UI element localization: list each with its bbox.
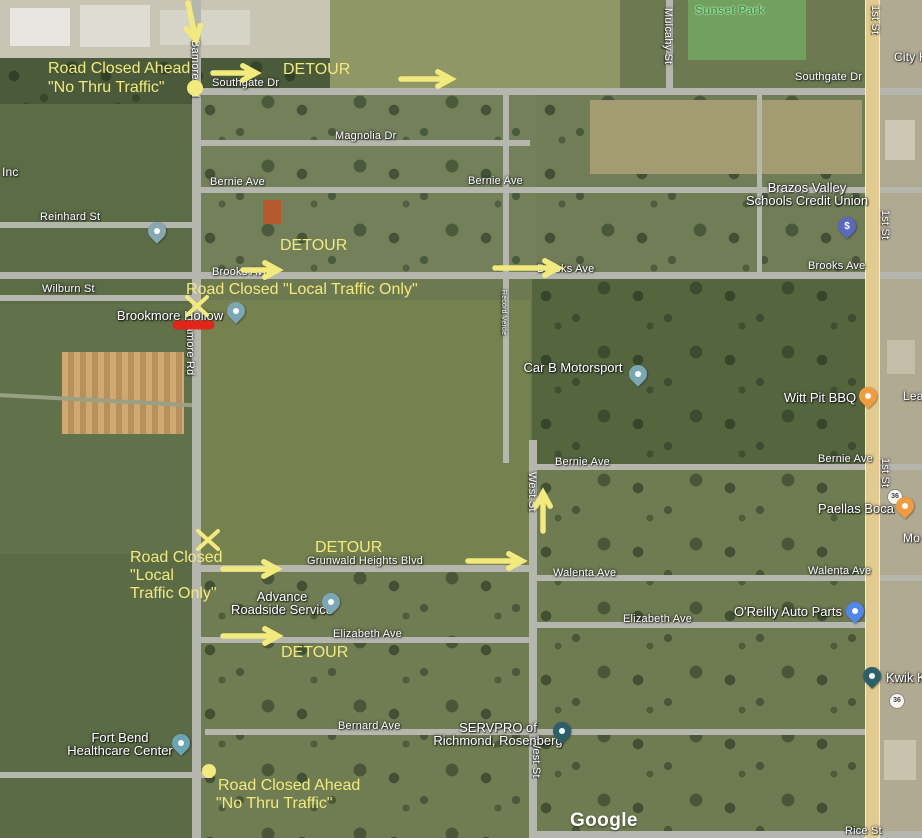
brazos-valley-schools-credit-union-dollar-icon: $ (838, 217, 856, 235)
annotation-detour: DETOUR (315, 539, 382, 557)
advance-roadside-service-pin[interactable] (318, 589, 343, 614)
street-label-1st-st: 1st St (879, 458, 891, 487)
highway-1st-st (865, 0, 880, 838)
school-dot-icon (148, 222, 166, 240)
witt-pit-bbq-pin[interactable] (855, 383, 880, 408)
fort-bend-healthcare-center-dot-icon (172, 734, 190, 752)
annotation-detour: DETOUR (283, 61, 350, 79)
street-label-magnolia-dr: Magnolia Dr (335, 130, 397, 142)
terrain-roof (80, 5, 150, 47)
street-label-walenta-ave: Walenta Ave (808, 565, 871, 577)
terrain-roof (160, 10, 250, 45)
annotation-traffic-only: Traffic Only" (130, 585, 217, 603)
terrain-suburb (532, 470, 866, 838)
street-label-elizabeth-ave: Elizabeth Ave (333, 628, 402, 640)
street-label-1st-st: 1st St (879, 210, 891, 239)
street-label-southgate-dr: Southgate Dr (795, 71, 862, 83)
street-label-bamore-rd: Bamore Rd (184, 318, 196, 375)
brazos-valley-schools-credit-union-pin[interactable]: $ (834, 213, 859, 238)
satellite-map[interactable]: Southgate DrSouthgate DrMagnolia DrBerni… (0, 0, 922, 838)
car-b-motorsport-label[interactable]: Car B Motorsport (524, 360, 623, 375)
street-label-reinhard-st: Reinhard St (40, 211, 100, 223)
partial-label-inc: Inc (2, 165, 19, 179)
park-label-sunset-park: Sunset Park (695, 3, 764, 17)
road-segment (0, 772, 212, 778)
servpro-of-richmond-rosenberg-dot-icon (553, 722, 571, 740)
terrain-field (196, 300, 530, 565)
brazos-valley-schools-credit-union-label[interactable]: Schools Credit Union (746, 193, 868, 208)
terrain-roof (884, 740, 916, 780)
oreilly-auto-parts-pin[interactable] (842, 598, 867, 623)
car-b-motorsport-pin[interactable] (625, 361, 650, 386)
advance-roadside-service-label[interactable]: Roadside Service (231, 602, 333, 617)
partial-label-mo: Mo (903, 531, 920, 545)
annotation-detour: DETOUR (281, 644, 348, 662)
street-label-bernard-ave: Bernard Ave (338, 720, 401, 732)
road-segment (503, 95, 509, 463)
terrain-roof (885, 120, 915, 160)
street-label-wilburn-st: Wilburn St (42, 283, 95, 295)
advance-roadside-service-dot-icon (322, 593, 340, 611)
street-label-bernie-ave: Bernie Ave (818, 453, 873, 465)
fort-bend-healthcare-center-pin[interactable] (168, 730, 193, 755)
street-label-record-verde: Record Verde (500, 290, 507, 335)
kwik-k-label[interactable]: Kwik K (886, 670, 922, 685)
kwik-k-dot-icon (863, 667, 881, 685)
car-b-motorsport-dot-icon (629, 365, 647, 383)
witt-pit-bbq-label[interactable]: Witt Pit BBQ (784, 390, 856, 405)
road-segment (0, 295, 196, 301)
street-label-1st-st: 1st St (869, 5, 881, 34)
street-label-elizabeth-ave: Elizabeth Ave (623, 613, 692, 625)
annotation-road-closed: Road Closed (130, 549, 223, 567)
street-label-west-st: West St (526, 472, 538, 512)
street-label-rice-st: Rice St (845, 825, 882, 837)
brookmore-hollow-dot-icon (227, 302, 245, 320)
servpro-of-richmond-rosenberg-pin[interactable] (549, 718, 574, 743)
road-segment (0, 272, 922, 279)
partial-label-lea: Lea (903, 389, 922, 403)
street-label-bamore-rd: Bamore Rd (189, 40, 201, 97)
brookmore-hollow-pin[interactable] (223, 298, 248, 323)
servpro-of-richmond-rosenberg-label[interactable]: Richmond, Rosenberg (433, 733, 562, 748)
terrain-roof (10, 8, 70, 46)
street-label-brooks-ave: Brooks Ave (212, 266, 269, 278)
annotation-no-thru-traffic: "No Thru Traffic" (216, 795, 333, 813)
witt-pit-bbq-dot-icon (859, 387, 877, 405)
school-pin[interactable] (144, 218, 169, 243)
partial-label-city-h: City H (894, 50, 922, 64)
paellas-boca-pin[interactable] (892, 493, 917, 518)
brookmore-hollow-label[interactable]: Brookmore Hollow (117, 308, 223, 323)
terrain-roof (887, 340, 915, 374)
paellas-boca-dot-icon (896, 497, 914, 515)
google-logo[interactable]: Google (570, 810, 638, 832)
street-label-southgate-dr: Southgate Dr (212, 77, 279, 89)
annotation-no-thru-traffic: "No Thru Traffic" (48, 79, 165, 97)
kwik-k-pin[interactable] (859, 663, 884, 688)
street-label-walenta-ave: Walenta Ave (553, 567, 616, 579)
street-label-bernie-ave: Bernie Ave (210, 176, 265, 188)
oreilly-auto-parts-dot-icon (846, 602, 864, 620)
paellas-boca-label[interactable]: Paellas Boca (818, 501, 894, 516)
annotation-road-closed-ahead: Road Closed Ahead (48, 60, 190, 78)
highway-shield-36: 36 (889, 693, 905, 709)
oreilly-auto-parts-label[interactable]: O'Reilly Auto Parts (734, 604, 842, 619)
annotation-detour: DETOUR (280, 237, 347, 255)
road-segment (757, 92, 762, 275)
annotation-road-closed-ahead: Road Closed Ahead (218, 777, 360, 795)
road-segment (196, 88, 922, 95)
terrain-field-tan (590, 100, 862, 174)
fort-bend-healthcare-center-label[interactable]: Healthcare Center (67, 743, 173, 758)
street-label-brooks-ave: Brooks Ave (808, 260, 865, 272)
annotation-road-closed-local-traffic-only: Road Closed "Local Traffic Only" (186, 281, 418, 299)
street-label-mulcahy-st: Mulcahy St (662, 8, 674, 64)
terrain-field (330, 0, 620, 92)
road-segment (529, 622, 870, 628)
annotation-local: "Local (130, 567, 174, 585)
street-label-bernie-ave: Bernie Ave (468, 175, 523, 187)
street-label-bernie-ave: Bernie Ave (555, 456, 610, 468)
road-segment (192, 0, 201, 838)
terrain-roof-orange (263, 200, 281, 224)
terrain-construction-site (62, 352, 184, 434)
street-label-brooks-ave: Brooks Ave (537, 263, 594, 275)
